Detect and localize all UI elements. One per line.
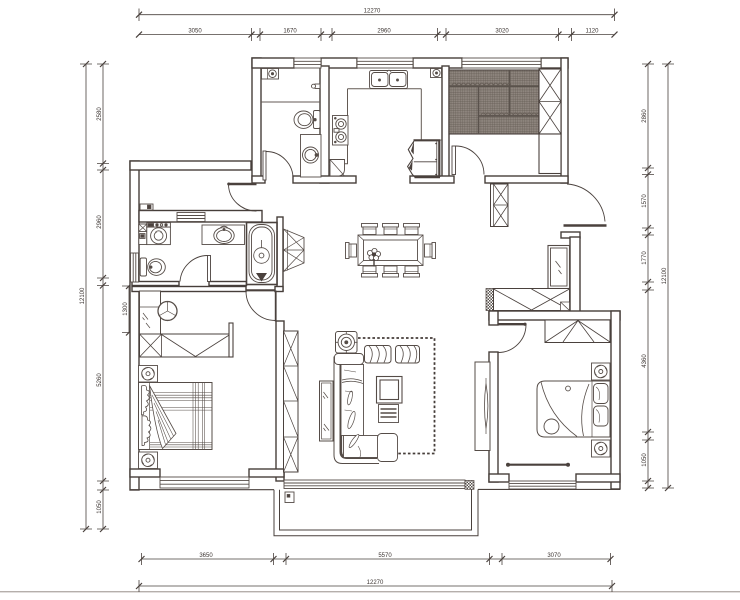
svg-text:1050: 1050 — [642, 453, 648, 467]
svg-text:12100: 12100 — [662, 267, 668, 284]
svg-text:1300: 1300 — [123, 302, 129, 316]
svg-text:2580: 2580 — [97, 107, 103, 121]
svg-text:3650: 3650 — [199, 553, 213, 559]
svg-text:2860: 2860 — [642, 109, 648, 123]
svg-text:5260: 5260 — [97, 373, 103, 387]
svg-text:12100: 12100 — [80, 287, 86, 304]
svg-text:3020: 3020 — [495, 29, 509, 35]
svg-text:3070: 3070 — [547, 553, 561, 559]
svg-text:4360: 4360 — [642, 354, 648, 368]
svg-text:3050: 3050 — [188, 29, 202, 35]
svg-text:5570: 5570 — [378, 553, 392, 559]
svg-text:2960: 2960 — [97, 215, 103, 229]
svg-text:1050: 1050 — [97, 500, 103, 514]
svg-text:12270: 12270 — [367, 580, 384, 586]
svg-text:12270: 12270 — [364, 9, 381, 15]
svg-text:1770: 1770 — [642, 251, 648, 265]
svg-text:1670: 1670 — [283, 29, 297, 35]
svg-text:1120: 1120 — [586, 29, 600, 35]
svg-text:1570: 1570 — [642, 194, 648, 208]
svg-text:2960: 2960 — [377, 29, 391, 35]
